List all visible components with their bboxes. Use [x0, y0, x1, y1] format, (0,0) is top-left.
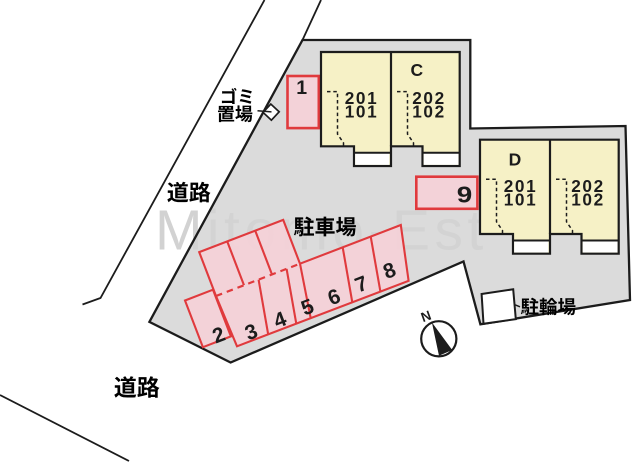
svg-text:1: 1 [296, 77, 307, 99]
svg-text:102: 102 [412, 102, 445, 122]
svg-text:9: 9 [457, 182, 473, 208]
svg-text:D: D [509, 150, 522, 170]
svg-text:101: 101 [504, 189, 537, 209]
svg-text:C: C [410, 60, 423, 80]
svg-text:101: 101 [345, 102, 378, 122]
svg-text:102: 102 [571, 189, 604, 209]
